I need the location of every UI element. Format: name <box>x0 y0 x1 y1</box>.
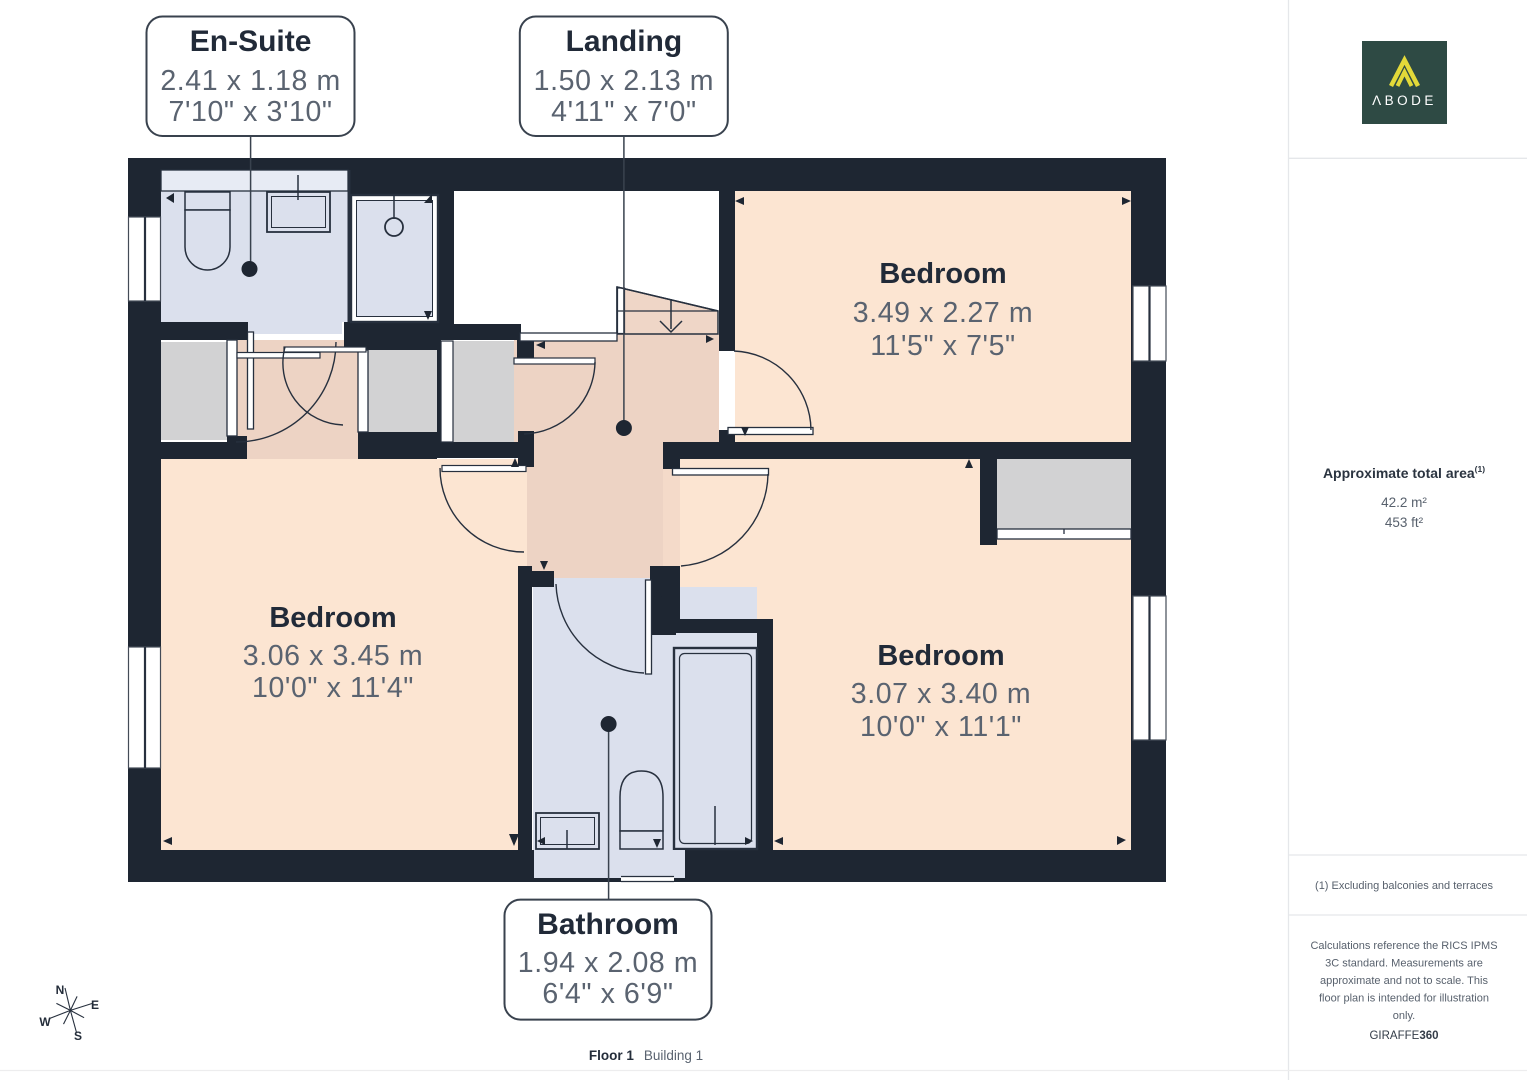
svg-text:only.: only. <box>1393 1010 1415 1022</box>
svg-text:S: S <box>74 1029 82 1043</box>
svg-text:E: E <box>91 998 99 1012</box>
svg-text:1.94 x 2.08 m: 1.94 x 2.08 m <box>518 947 698 979</box>
svg-text:3.49 x 2.27 m: 3.49 x 2.27 m <box>853 297 1033 329</box>
svg-text:Floor 1Building 1: Floor 1Building 1 <box>589 1048 703 1063</box>
svg-text:10'0" x 11'4": 10'0" x 11'4" <box>252 672 414 704</box>
svg-text:W: W <box>39 1015 51 1029</box>
svg-text:11'5" x 7'5": 11'5" x 7'5" <box>870 330 1016 362</box>
svg-text:GIRAFFE360: GIRAFFE360 <box>1369 1030 1438 1042</box>
svg-text:Landing: Landing <box>566 25 683 58</box>
svg-text:3C standard. Measurements are: 3C standard. Measurements are <box>1325 958 1483 970</box>
svg-text:453 ft²: 453 ft² <box>1385 515 1424 530</box>
svg-text:ΛBODE: ΛBODE <box>1372 93 1437 108</box>
svg-text:4'11" x 7'0": 4'11" x 7'0" <box>551 96 697 128</box>
svg-text:Bedroom: Bedroom <box>877 640 1004 672</box>
svg-text:10'0" x 11'1": 10'0" x 11'1" <box>860 711 1022 743</box>
svg-text:7'10" x 3'10": 7'10" x 3'10" <box>169 96 333 128</box>
svg-text:approximate and not to scale.: approximate and not to scale. This <box>1320 975 1488 987</box>
svg-text:1.50 x 2.13 m: 1.50 x 2.13 m <box>534 65 714 97</box>
svg-text:Bathroom: Bathroom <box>537 908 679 941</box>
svg-text:3.06 x 3.45 m: 3.06 x 3.45 m <box>243 640 423 672</box>
svg-text:(1) Excluding balconies and te: (1) Excluding balconies and terraces <box>1315 880 1493 892</box>
svg-text:3.07 x 3.40 m: 3.07 x 3.40 m <box>851 678 1031 710</box>
svg-text:42.2 m²: 42.2 m² <box>1381 495 1427 510</box>
svg-text:floor plan is intended for ill: floor plan is intended for illustration <box>1319 993 1489 1005</box>
svg-text:En-Suite: En-Suite <box>190 25 312 58</box>
svg-text:6'4" x 6'9": 6'4" x 6'9" <box>542 978 673 1010</box>
svg-text:Approximate total area(1): Approximate total area(1) <box>1323 464 1485 481</box>
svg-text:Calculations reference the RIC: Calculations reference the RICS IPMS <box>1310 940 1497 952</box>
svg-text:2.41 x 1.18 m: 2.41 x 1.18 m <box>160 65 340 97</box>
svg-text:N: N <box>56 983 65 997</box>
svg-text:Bedroom: Bedroom <box>269 602 396 634</box>
svg-text:Bedroom: Bedroom <box>879 258 1006 290</box>
